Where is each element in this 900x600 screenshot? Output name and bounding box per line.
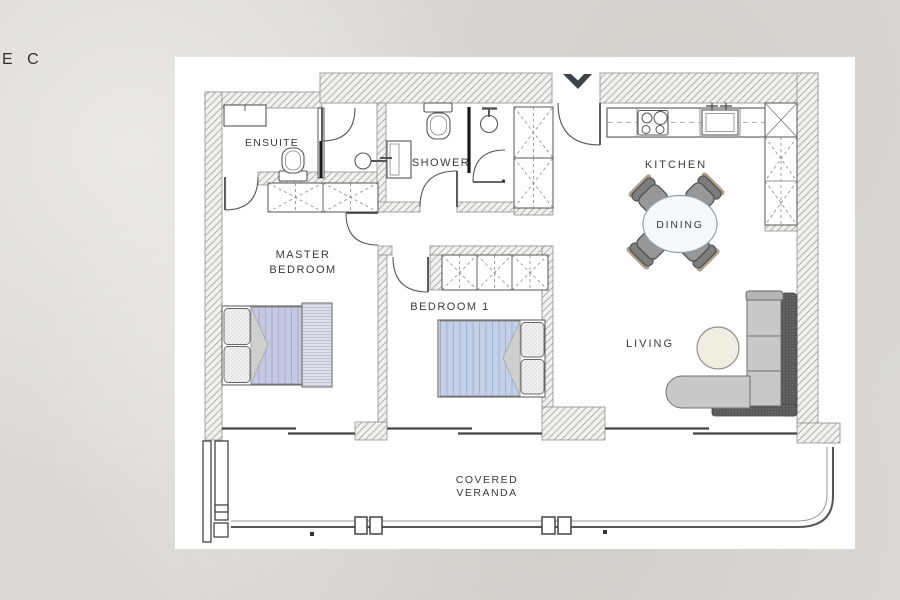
wall-bottom-L-block xyxy=(542,407,605,440)
hob-icon xyxy=(638,111,668,136)
shower-toilet-icon xyxy=(424,103,452,139)
railing-post xyxy=(370,517,382,534)
wall-bottom-pier xyxy=(355,422,387,440)
shower-label: SHOWER xyxy=(412,157,471,169)
bed-pillow xyxy=(224,309,250,345)
master-wardrobe xyxy=(268,183,378,212)
living-label: LIVING xyxy=(626,338,674,350)
corner-label: E C xyxy=(2,51,44,68)
bedroom1-wardrobe xyxy=(442,255,548,290)
wall-cupboard-cap xyxy=(514,208,553,215)
wall-shower-bottom-right xyxy=(457,202,514,212)
wall-shower-bottom-left xyxy=(377,202,420,212)
dining-label: DINING xyxy=(656,219,704,231)
wall-top-right xyxy=(600,73,818,103)
railing-post xyxy=(542,517,555,534)
ensuite-vanity xyxy=(224,105,266,126)
ensuite-toilet-icon xyxy=(279,148,307,181)
wall-bedroom1-top xyxy=(430,246,552,255)
master-bed xyxy=(222,303,332,387)
bed-blanket xyxy=(302,303,332,387)
railing-post xyxy=(558,517,571,534)
coffee-table xyxy=(697,327,739,369)
railing-dot xyxy=(603,530,607,534)
kitchen-label: KITCHEN xyxy=(645,159,707,171)
kitchen-tall-units xyxy=(765,103,797,225)
bed-pillow xyxy=(224,347,250,383)
sofa-back xyxy=(781,293,797,416)
wc-niche-door-hinge xyxy=(502,179,505,182)
wall-bottom-right-block xyxy=(797,423,840,443)
veranda-label-line1: COVERED xyxy=(456,474,518,486)
railing-dot xyxy=(310,532,314,536)
wall-kitchen-units-cap xyxy=(765,225,797,231)
bed-pillow xyxy=(521,360,544,395)
railing-post xyxy=(355,517,367,534)
wall-right xyxy=(797,73,818,423)
wall-bedroom1-top-left xyxy=(378,246,392,255)
sofa-chaise xyxy=(666,376,750,408)
floor-plan-drawing: E C xyxy=(0,0,900,600)
veranda-left-post xyxy=(214,523,228,537)
veranda-left-connector xyxy=(215,505,228,512)
bed-pillow xyxy=(521,323,544,358)
ensuite-label: ENSUITE xyxy=(245,137,299,149)
bedroom1-label: BEDROOM 1 xyxy=(410,301,490,313)
master-bedroom-label-line2: BEDROOM xyxy=(269,264,336,276)
veranda-left-column xyxy=(203,441,211,542)
wall-left xyxy=(205,92,222,440)
wall-top-middle xyxy=(320,73,552,103)
master-bedroom-label-line1: MASTER xyxy=(276,249,331,261)
bedroom1-bed xyxy=(438,320,545,397)
floor-plan-page: E C xyxy=(0,0,900,600)
hall-cupboard xyxy=(514,107,553,208)
veranda-label-line2: VERANDA xyxy=(456,487,517,499)
wall-bedroom1-wardrobe-pier xyxy=(430,255,442,290)
wall-master-bedroom1-divider xyxy=(378,255,387,422)
